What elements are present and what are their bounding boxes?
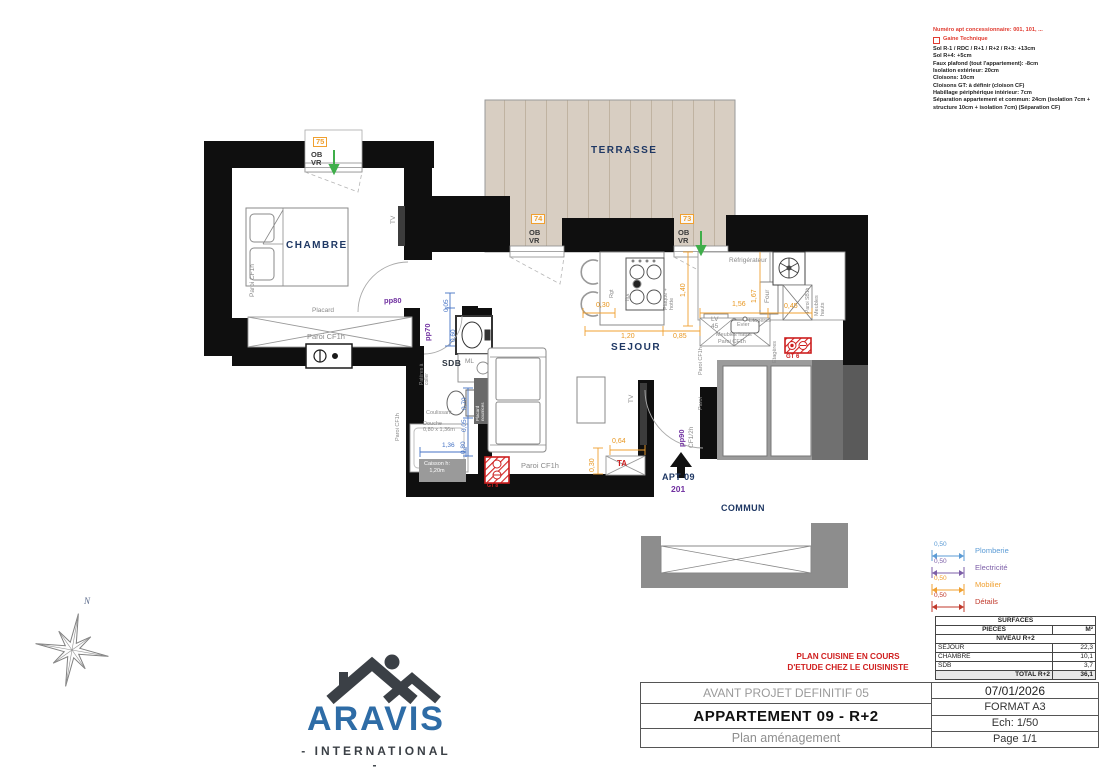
label-meubles-hauts-2: Meubles hauts [815, 295, 827, 316]
label-paroi-placard: Paroi CF1h [307, 333, 345, 341]
note-concession: Numéro apt concessionnaire: 001, 101, ..… [933, 27, 1100, 34]
label-dim-0-45: 0,45 [784, 303, 798, 311]
label-ilot: Ilot [626, 294, 632, 301]
gaine-square-icon [933, 37, 940, 44]
note-line-6: Habillage périphérique intérieur: 7cm [933, 90, 1100, 97]
label-placard: Placard [312, 307, 334, 314]
sheet-date: 07/01/2026 [932, 683, 1098, 699]
label-terrasse: TERRASSE [591, 146, 657, 157]
label-dim-0-70: 0,70 [461, 397, 468, 410]
technical-notes: Numéro apt concessionnaire: 001, 101, ..… [933, 27, 1100, 112]
label-door-pp70: pp70 [424, 323, 432, 341]
project-phase: AVANT PROJET DEFINITIF 05 [641, 683, 931, 704]
label-ta: TA [617, 460, 627, 469]
legend-row-mobilier: 0,50Mobilier [928, 578, 1058, 595]
label-dim-0-80: 0,80 [460, 441, 467, 454]
logo-wordmark: ARAVIS [300, 700, 452, 739]
label-dim-0-05-b: 0,05 [461, 419, 468, 432]
label-dim-1-67: 1,67 [751, 289, 759, 303]
legend-row-electricité: 0,50Electricité [928, 561, 1058, 578]
label-lv-45: LV 45 [711, 316, 718, 330]
note-line-2: Faux plafond (tout l'appartement): -8cm [933, 61, 1100, 68]
label-gt-6: GT 6 [786, 354, 799, 360]
label-ml: ML [465, 358, 474, 365]
label-dim-0-85: 0,85 [673, 333, 687, 341]
label-gt-8: GT 8 [487, 484, 498, 489]
label-coulissant: Coulissant [426, 411, 452, 417]
note-line-0: Sol R-1 / RDC / R+1 / R+2 / R+3: +13cm [933, 46, 1100, 53]
label-win-75: 75 [313, 137, 327, 147]
label-refrigerateur: Réfrigérateur [729, 257, 767, 264]
label-dim-0-60: 0,60 [450, 329, 457, 342]
label-sdb: SDB [442, 359, 461, 368]
label-dim-0-64: 0,64 [612, 438, 626, 446]
note-lines: Sol R-1 / RDC / R+1 / R+2 / R+3: +13cmSo… [933, 46, 1100, 112]
label-four: Four [764, 290, 771, 303]
title-block-left: AVANT PROJET DEFINITIF 05 APPARTEMENT 09… [641, 683, 932, 747]
label-ob-vr-74: OB VR [529, 229, 540, 246]
label-dim-0-30-b: 0,30 [589, 458, 597, 472]
label-apt-num: 201 [671, 485, 685, 494]
label-paroi-sb1h: Paroi SB1h [806, 288, 811, 313]
label-tv-bedroom: TV [390, 216, 397, 224]
label-door-pp80: pp80 [384, 297, 402, 305]
label-sejour: SEJOUR [611, 343, 661, 354]
label-etageres-1: Etagères [749, 319, 771, 325]
label-paroi-kitchen-2: Paroi CF1h [718, 340, 746, 346]
label-placard-nourrices: Placard nourrices [476, 402, 486, 421]
label-rgt: Rgt [610, 289, 616, 298]
label-ob-vr-75: OB VR [311, 151, 322, 168]
title-block: AVANT PROJET DEFINITIF 05 APPARTEMENT 09… [640, 682, 1099, 748]
label-ob-vr-73: OB VR [678, 229, 689, 246]
compass-north-label: N [84, 596, 90, 606]
logo-subtitle: - INTERNATIONAL - [300, 744, 452, 772]
note-line-7: Séparation appartement et commun: 24cm (… [933, 97, 1100, 112]
sheet-subtitle: Plan aménagement [641, 729, 931, 747]
title-block-right: 07/01/2026 FORMAT A3 Ech: 1/50 Page 1/1 [932, 683, 1098, 747]
label-paroi-left: Paroi CF1h [249, 264, 256, 297]
sheet-scale: Ech: 1/50 [932, 716, 1098, 732]
floor-plan-sheet: TERRASSECHAMBRESEJOURSDBAPT 09201COMMUNp… [0, 0, 1100, 777]
label-caisson: Caisson h: 1,20m [424, 461, 450, 474]
label-dim-1-36: 1,36 [442, 442, 455, 449]
legend-row-détails: 0,50Détails [928, 595, 1058, 612]
label-dim-1-40: 1,40 [680, 283, 688, 297]
dimension-line-icon [928, 600, 968, 612]
label-win-73: 73 [680, 214, 694, 224]
plan-legend: 0,50Plomberie0,50Electricité0,50Mobilier… [928, 544, 1058, 612]
note-line-3: Isolation extérieur: 20cm [933, 68, 1100, 75]
label-plaque-hotte: Plaque + hotte [664, 288, 676, 310]
label-dim-0-30-a: 0,30 [596, 302, 610, 310]
label-chambre: CHAMBRE [286, 241, 348, 252]
label-commun: COMMUN [721, 504, 765, 514]
label-etageres-2: Etagères [773, 341, 779, 363]
label-door-cf12h: CF1/2h [688, 427, 695, 448]
note-line-5: Cloisons GT: à définir (cloison CF) [933, 83, 1100, 90]
label-door-pp90: pp90 [678, 429, 686, 447]
note-line-1: Sol R+4: +5cm [933, 53, 1100, 60]
sheet-title: APPARTEMENT 09 - R+2 [641, 704, 931, 729]
label-paroi-sdb: Paroi CF1h [396, 413, 402, 441]
label-douche: Douche 0,80 x 1,36m [423, 422, 455, 434]
kitchen-study-note: PLAN CUISINE EN COURS D'ETUDE CHEZ LE CU… [768, 652, 928, 673]
label-paroi-kitchen: Paroi CF1h [699, 347, 705, 375]
label-dim-1-56: 1,56 [732, 301, 746, 309]
sheet-format: FORMAT A3 [932, 699, 1098, 715]
label-win-74: 74 [531, 214, 545, 224]
label-pateres: Patères à coller [420, 364, 431, 385]
note-gaine-technique: Gaine Technique [933, 36, 1100, 43]
label-apt-09: APT 09 [662, 473, 695, 483]
label-tv-sejour: TV [628, 395, 635, 403]
label-paroi-entry: Paroi [699, 397, 705, 410]
legend-row-plomberie: 0,50Plomberie [928, 544, 1058, 561]
label-evier: Evier [737, 323, 750, 329]
label-dim-0-05-a: 0,05 [443, 299, 450, 312]
note-line-4: Cloisons: 10cm [933, 75, 1100, 82]
label-dim-1-20: 1,20 [621, 333, 635, 341]
sheet-page: Page 1/1 [932, 732, 1098, 747]
label-paroi-bottom: Paroi CF1h [521, 462, 559, 470]
surfaces-table: SURFACESPIECESM²NIVEAU R+2SEJOUR22,3CHAM… [935, 616, 1096, 680]
